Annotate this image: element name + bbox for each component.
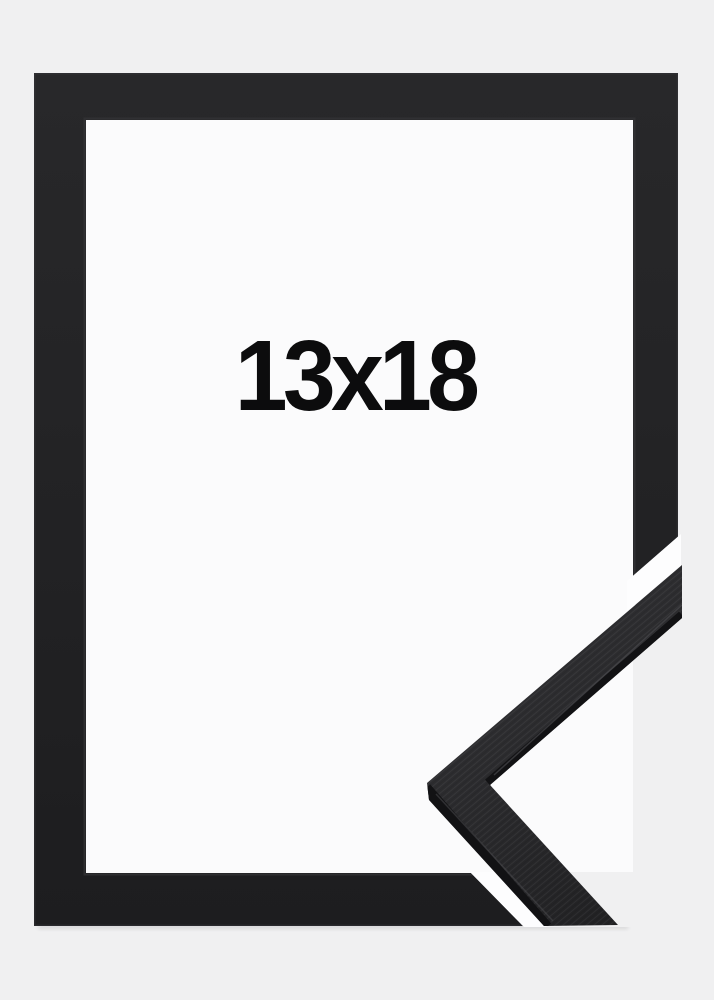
size-label: 13x18 [18,326,693,426]
frame-inner-mount [86,120,633,873]
product-photo-black-frame: 13x18 [0,0,714,1000]
frame-illustration [0,0,714,1000]
